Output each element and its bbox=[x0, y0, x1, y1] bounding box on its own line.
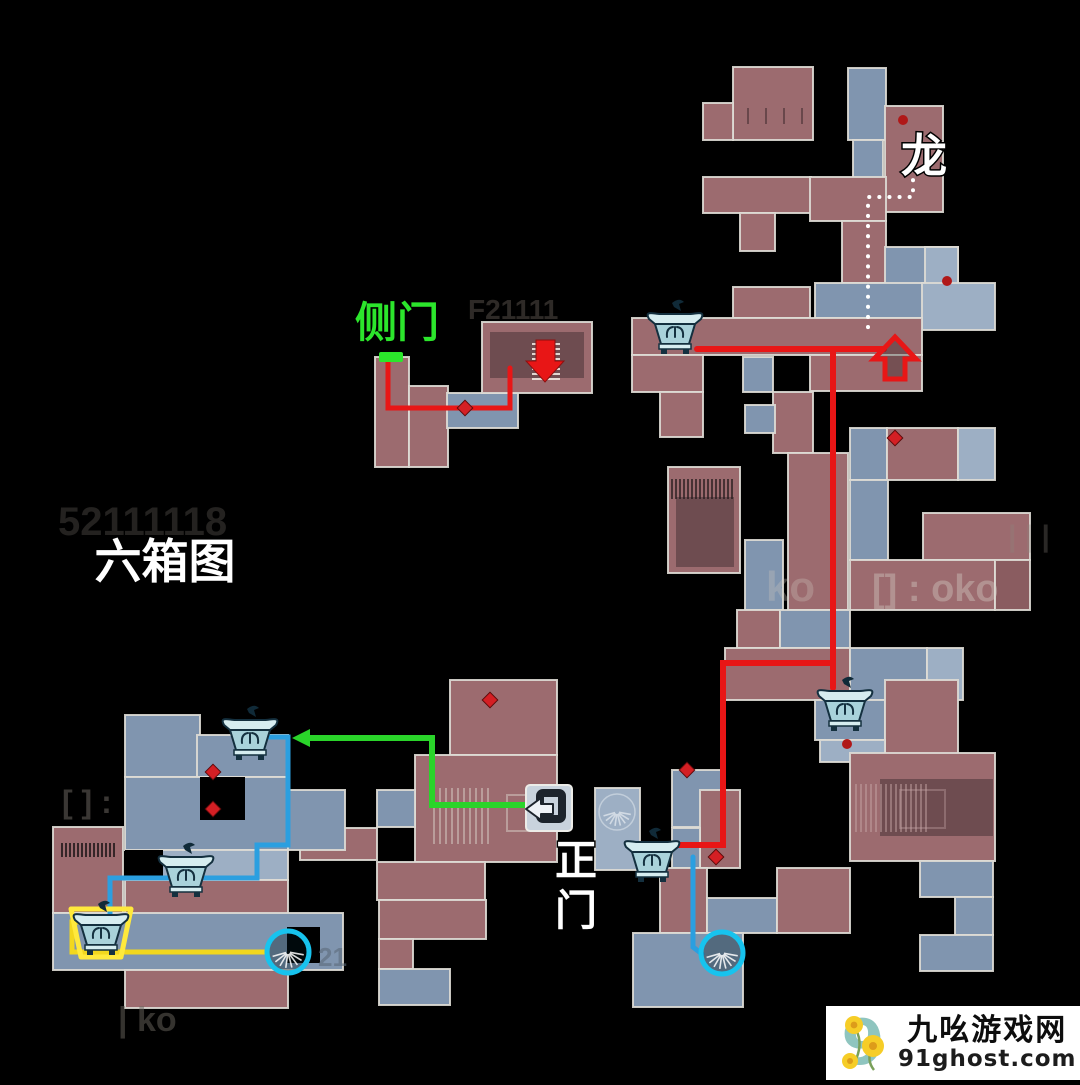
map-room bbox=[995, 560, 1030, 610]
map-room bbox=[377, 862, 485, 900]
map-room bbox=[922, 283, 995, 330]
map-room bbox=[288, 790, 345, 850]
map-hole bbox=[200, 777, 245, 820]
map-room bbox=[632, 355, 703, 392]
ghost-watermark-text: | | | bbox=[1008, 520, 1050, 553]
map-room bbox=[707, 898, 777, 933]
gate-marker-icon bbox=[526, 785, 572, 831]
game-map: 52111118ko[] : oko[ ] :| koF21111| | |21… bbox=[0, 0, 1080, 1080]
ghost-watermark-text: [ ] : bbox=[62, 784, 112, 820]
map-room bbox=[780, 610, 850, 648]
map-room bbox=[848, 68, 886, 140]
red-dot-marker bbox=[898, 115, 908, 125]
site-name: 九吆游戏网 bbox=[907, 1015, 1067, 1047]
map-room bbox=[450, 680, 557, 755]
label-dragon: 龙 bbox=[901, 129, 947, 183]
map-room bbox=[703, 177, 811, 213]
map-room bbox=[733, 287, 810, 318]
map-room bbox=[125, 880, 288, 915]
map-room bbox=[377, 790, 415, 827]
map-room bbox=[810, 177, 886, 221]
map-texture bbox=[856, 784, 926, 832]
map-room bbox=[676, 497, 734, 567]
map-room bbox=[777, 868, 850, 933]
spiral-stair-highlight bbox=[267, 931, 309, 973]
map-room bbox=[125, 715, 200, 777]
ghost-watermark-text: ko bbox=[766, 563, 815, 610]
map-room bbox=[740, 213, 775, 251]
ghost-watermark-text: [] : oko bbox=[872, 568, 999, 610]
map-room bbox=[853, 140, 883, 178]
ghost-watermark-text: 21 bbox=[318, 942, 347, 972]
map-room bbox=[842, 221, 886, 283]
map-room bbox=[409, 386, 448, 467]
site-watermark: 9 九吆游戏网 91ghost.com bbox=[826, 1006, 1080, 1080]
map-room bbox=[379, 939, 413, 969]
screenshot-stage: 52111118ko[] : oko[ ] :| koF21111| | |21… bbox=[0, 0, 1080, 1080]
ghost-watermark-text: | ko bbox=[118, 1001, 177, 1039]
map-room bbox=[885, 680, 958, 760]
label-main-gate-1: 正 bbox=[555, 836, 597, 885]
map-room bbox=[737, 610, 780, 648]
map-room bbox=[850, 428, 887, 480]
map-room bbox=[660, 392, 703, 437]
label-main-gate-2: 门 bbox=[555, 886, 597, 935]
map-room bbox=[920, 861, 993, 897]
map-room bbox=[379, 900, 486, 939]
map-room bbox=[773, 392, 813, 453]
red-dot-marker bbox=[942, 276, 952, 286]
map-room bbox=[850, 480, 888, 560]
red-dot-marker bbox=[842, 739, 852, 749]
map-room bbox=[703, 103, 733, 140]
map-room bbox=[379, 969, 450, 1005]
label-side-door: 侧门 bbox=[355, 298, 439, 347]
map-room bbox=[743, 357, 773, 392]
site-url: 91ghost.com bbox=[898, 1047, 1076, 1071]
map-room bbox=[920, 935, 993, 971]
map-room bbox=[958, 428, 995, 480]
site-logo-icon: 9 bbox=[832, 1008, 894, 1078]
map-room bbox=[733, 67, 813, 140]
ghost-watermark-text: F21111 bbox=[468, 294, 558, 325]
side-door-marker bbox=[379, 352, 403, 362]
map-room bbox=[375, 357, 409, 467]
spiral-stair-highlight bbox=[701, 932, 743, 974]
map-room bbox=[955, 897, 993, 935]
label-six-box-map: 六箱图 bbox=[95, 535, 236, 590]
map-room bbox=[745, 405, 775, 433]
